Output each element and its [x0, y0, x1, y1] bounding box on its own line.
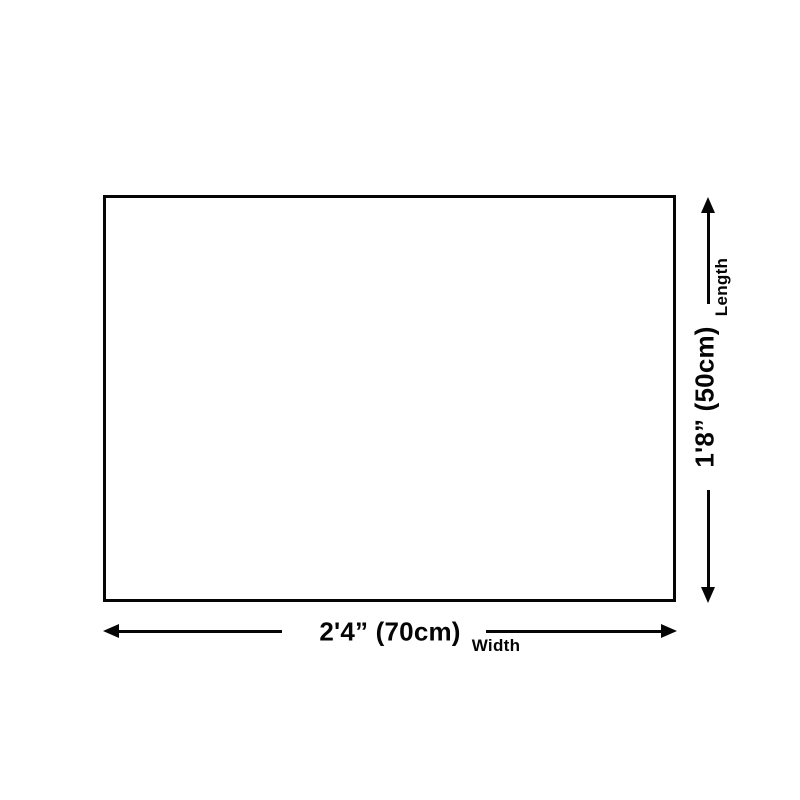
- arrow-down-icon: [701, 587, 715, 603]
- arrow-up-icon: [701, 197, 715, 213]
- length-dimension-line-top-segment: [707, 211, 710, 304]
- length-dimension-line-bottom-segment: [707, 490, 710, 589]
- width-caption-label: Width: [472, 636, 521, 656]
- length-value-label: 1'8” (50cm): [690, 326, 721, 467]
- product-outline-panel: [103, 195, 676, 602]
- width-dimension-line-left-segment: [115, 630, 282, 633]
- width-value-label: 2'4” (70cm): [319, 617, 460, 648]
- length-caption-label: Length: [712, 258, 732, 316]
- arrow-right-icon: [661, 624, 677, 638]
- dimension-diagram: 2'4” (70cm) Width 1'8” (50cm) Length: [0, 0, 800, 800]
- arrow-left-icon: [103, 624, 119, 638]
- width-dimension-line-right-segment: [486, 630, 664, 633]
